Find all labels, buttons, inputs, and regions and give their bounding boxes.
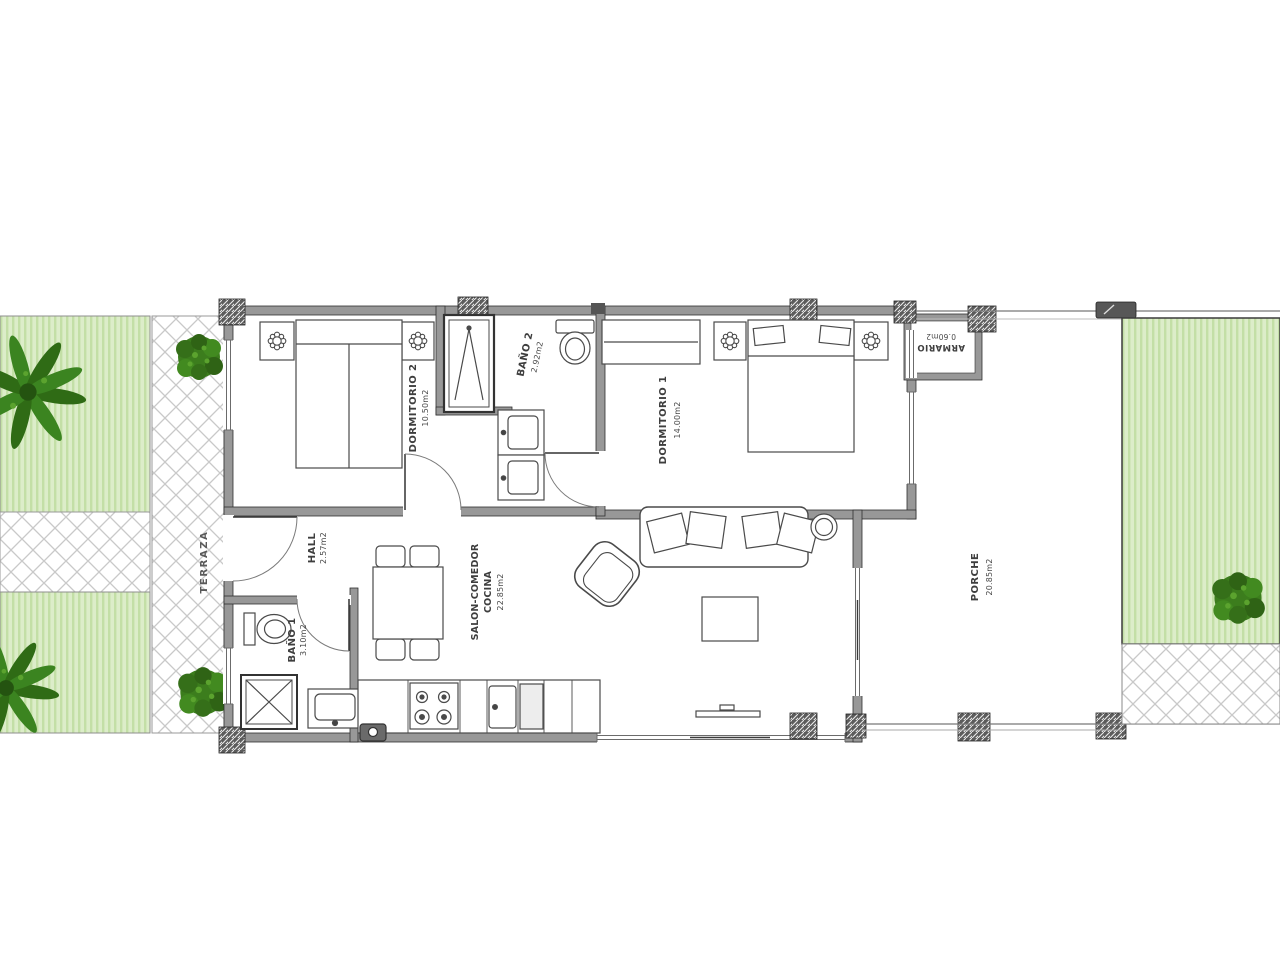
svg-text:DORMITORIO 2: DORMITORIO 2 xyxy=(408,364,419,453)
svg-text:SALON-COMEDOR: SALON-COMEDOR xyxy=(470,543,481,640)
outdoor-unit xyxy=(360,724,386,741)
svg-text:COCINA: COCINA xyxy=(483,571,494,614)
chair xyxy=(410,639,439,660)
kitchen-counter xyxy=(358,680,600,733)
burner-dot xyxy=(420,715,425,720)
svg-text:14.00m2: 14.00m2 xyxy=(673,401,682,438)
shower-tray xyxy=(449,320,489,407)
pillar xyxy=(894,301,916,323)
paving-right xyxy=(1122,644,1280,724)
dorm2-door-gap xyxy=(403,506,461,517)
floor-plan-page: TERRAZA xyxy=(0,0,1280,960)
washbasin-bowl xyxy=(315,694,355,720)
faucet-icon xyxy=(493,705,498,710)
porche-label: PORCHE 20.85m2 xyxy=(970,553,994,601)
terraza-paving xyxy=(152,316,224,733)
side-table-inner xyxy=(816,519,833,536)
tv-bench xyxy=(696,711,760,717)
wall-bedroom-strip-b xyxy=(459,507,596,516)
svg-text:ARMARIO: ARMARIO xyxy=(917,342,965,352)
bano1-door-gap xyxy=(297,595,351,605)
wall-bano1-top xyxy=(224,596,298,604)
faucet-icon xyxy=(501,430,505,434)
fridge xyxy=(520,684,543,729)
toilet-bowl-inner xyxy=(265,620,286,638)
terraza: TERRAZA xyxy=(152,316,229,733)
ac-unit xyxy=(1096,302,1136,318)
pillar xyxy=(958,713,990,741)
svg-text:20.85m2: 20.85m2 xyxy=(985,558,994,595)
pillow xyxy=(753,325,785,345)
bano2-door-gap xyxy=(595,451,606,506)
svg-text:10.50m2: 10.50m2 xyxy=(421,389,430,426)
floor-plan: TERRAZA xyxy=(0,0,1280,960)
right-garden xyxy=(1122,318,1280,724)
svg-text:3.10m2: 3.10m2 xyxy=(299,624,308,656)
coffee-table xyxy=(702,597,758,641)
svg-text:HALL: HALL xyxy=(307,533,318,564)
window xyxy=(906,392,917,484)
vanity-basin xyxy=(508,416,538,449)
bano1-label: BAÑO 1 3.10m2 xyxy=(285,617,308,662)
svg-text:BAÑO 1: BAÑO 1 xyxy=(285,617,298,662)
lamp-icon xyxy=(862,332,880,350)
sofa-cushion xyxy=(742,512,782,549)
svg-text:DORMITORIO 1: DORMITORIO 1 xyxy=(658,376,669,465)
window xyxy=(223,340,234,430)
chair xyxy=(410,546,439,567)
hall-label: HALL 2.57m2 xyxy=(307,532,328,564)
lamp-icon xyxy=(721,332,739,350)
burner-dot xyxy=(420,695,424,699)
faucet-icon xyxy=(501,476,505,480)
svg-text:22.85m2: 22.85m2 xyxy=(496,573,505,610)
lamp-icon xyxy=(409,332,427,350)
pillar xyxy=(790,713,817,739)
entry-door-gap xyxy=(223,515,234,581)
bush-tree-icon xyxy=(176,334,223,380)
lamp-icon xyxy=(268,332,286,350)
toilet-tank xyxy=(556,320,594,333)
sofa-cushion xyxy=(686,512,726,549)
toilet-bowl-inner xyxy=(566,338,585,360)
terraza-label: TERRAZA xyxy=(199,531,210,594)
chair xyxy=(376,639,405,660)
pillar xyxy=(219,299,245,325)
dining-table xyxy=(373,567,443,639)
vanity-basin xyxy=(508,461,538,494)
shower-drain-icon xyxy=(467,326,471,330)
pillar xyxy=(219,727,245,753)
svg-text:PORCHE: PORCHE xyxy=(970,553,981,601)
svg-text:2.57m2: 2.57m2 xyxy=(319,532,328,564)
kitchen xyxy=(358,680,600,733)
bush-tree-icon xyxy=(1212,572,1265,624)
pillow xyxy=(819,325,851,345)
toilet-tank xyxy=(244,613,255,645)
left-garden xyxy=(0,316,150,742)
burner-dot xyxy=(442,715,447,720)
chair xyxy=(376,546,405,567)
window xyxy=(223,648,234,704)
wall-bedroom-strip-a xyxy=(224,507,404,516)
burner-dot xyxy=(442,695,446,699)
tv xyxy=(720,705,734,710)
outdoor-unit-fan-icon xyxy=(369,728,378,737)
faucet-icon xyxy=(333,721,338,726)
svg-text:0.60m2: 0.60m2 xyxy=(926,332,956,341)
wall-mark xyxy=(591,303,605,314)
bush-tree-icon xyxy=(178,667,229,717)
pillar xyxy=(846,714,866,738)
window xyxy=(906,330,917,378)
garden-path xyxy=(0,512,150,592)
